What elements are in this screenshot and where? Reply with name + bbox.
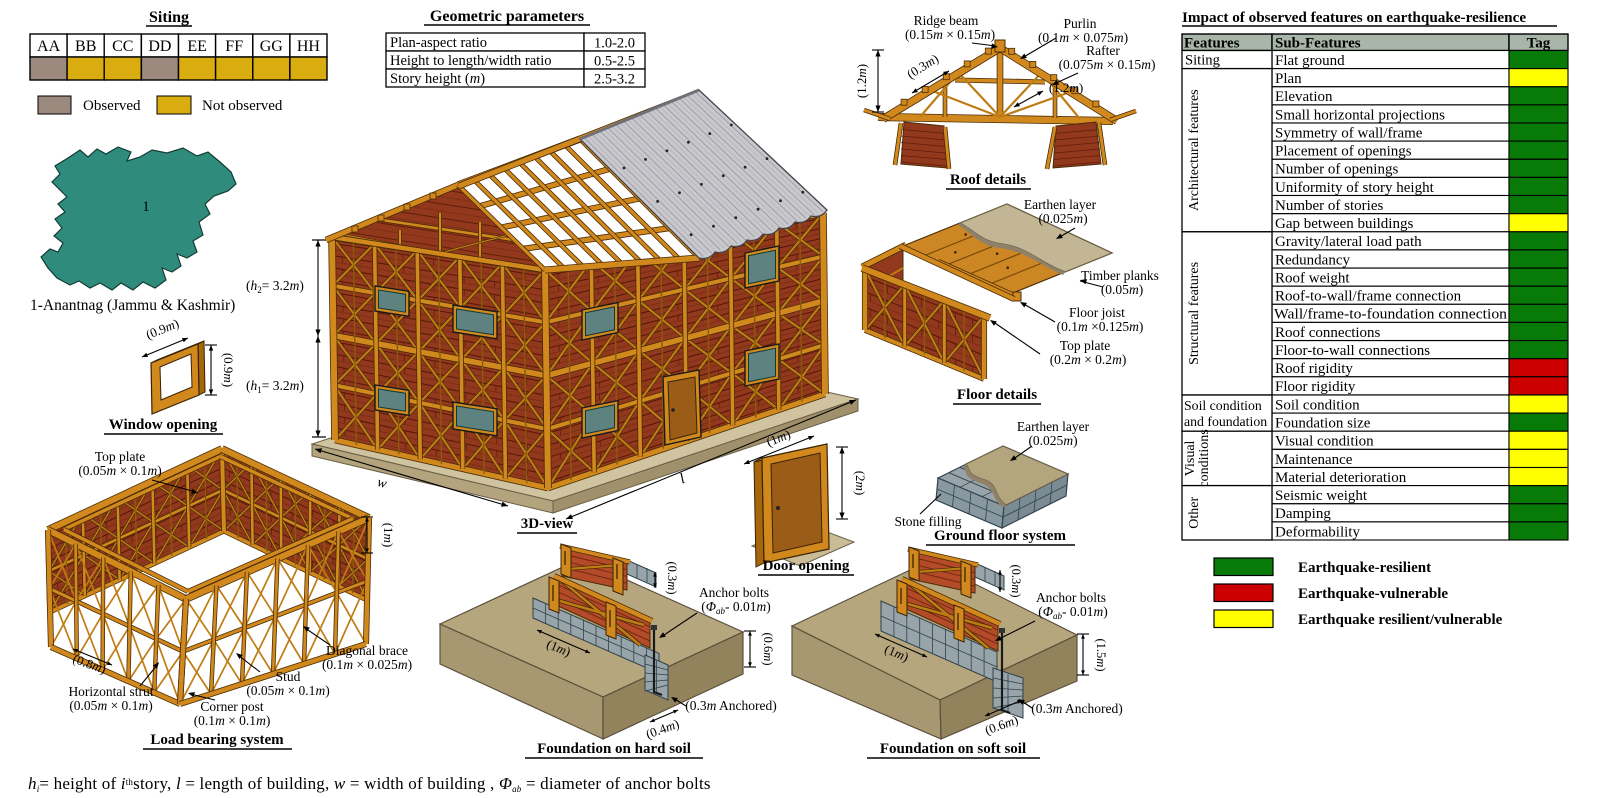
svg-text:(0.05m × 0.1m): (0.05m × 0.1m) [78, 463, 161, 478]
svg-text:Purlin: Purlin [1063, 16, 1096, 31]
svg-text:conditions: conditions [1197, 429, 1212, 487]
svg-text:EE: EE [187, 38, 207, 55]
svg-text:Material deterioration: Material deterioration [1275, 470, 1407, 486]
svg-text:Uniformity of story height: Uniformity of story height [1275, 180, 1435, 196]
svg-text:Earthen layer: Earthen layer [1024, 197, 1097, 212]
svg-text:Earthen layer: Earthen layer [1017, 419, 1090, 434]
svg-text:3D-view: 3D-view [521, 516, 574, 532]
svg-text:Roof details: Roof details [950, 172, 1026, 188]
svg-text:Foundation on hard soil: Foundation on hard soil [537, 741, 691, 757]
svg-text:Roof weight: Roof weight [1275, 271, 1350, 287]
svg-text:(0.05m × 0.1m): (0.05m × 0.1m) [69, 698, 152, 713]
svg-text:Plan-aspect ratio: Plan-aspect ratio [390, 35, 487, 51]
svg-text:Flat ground: Flat ground [1275, 53, 1345, 69]
svg-text:(0.075m × 0.15m): (0.075m × 0.15m) [1059, 57, 1156, 72]
svg-text:Siting: Siting [149, 9, 189, 26]
svg-text:Anchor bolts: Anchor bolts [699, 585, 769, 600]
svg-text:(0.3m Anchored): (0.3m Anchored) [685, 698, 776, 713]
svg-text:Gap between buildings: Gap between buildings [1275, 216, 1413, 232]
svg-text:Architectural features: Architectural features [1187, 89, 1202, 211]
svg-text:Window opening: Window opening [109, 417, 218, 433]
svg-text:(0.2m × 0.2m): (0.2m × 0.2m) [1050, 352, 1127, 367]
svg-text:Elevation: Elevation [1275, 89, 1333, 105]
svg-text:Soil condition: Soil condition [1275, 397, 1360, 413]
svg-text:Tag: Tag [1527, 36, 1551, 52]
svg-text:Story height (m): Story height (m) [390, 71, 485, 87]
svg-text:1: 1 [142, 199, 150, 215]
svg-text:Foundation size: Foundation size [1275, 416, 1371, 432]
svg-text:Plan: Plan [1275, 71, 1302, 87]
svg-text:1-Anantnag (Jammu & Kashmir): 1-Anantnag (Jammu & Kashmir) [30, 297, 235, 314]
svg-text:Earthquake-resilient: Earthquake-resilient [1298, 560, 1431, 576]
svg-text:Roof connections: Roof connections [1275, 325, 1381, 341]
svg-text:Siting: Siting [1185, 53, 1221, 69]
svg-text:HH: HH [297, 38, 321, 55]
svg-text:(1.2m): (1.2m) [1049, 80, 1083, 95]
svg-text:DD: DD [148, 38, 171, 55]
svg-text:(Φab- 0.01m): (Φab- 0.01m) [1038, 604, 1108, 621]
svg-text:(Φab- 0.01m): (Φab- 0.01m) [701, 599, 771, 616]
svg-text:(h1= 3.2m): (h1= 3.2m) [246, 378, 304, 395]
svg-text:Not observed: Not observed [202, 98, 283, 114]
svg-text:AA: AA [37, 38, 61, 55]
svg-text:Number of stories: Number of stories [1275, 198, 1383, 214]
svg-text:(1m): (1m) [381, 523, 396, 548]
svg-text:(0.1m ×0.125m): (0.1m ×0.125m) [1057, 319, 1144, 334]
svg-text:Geometric parameters: Geometric parameters [430, 8, 584, 25]
svg-text:Visual condition: Visual condition [1275, 434, 1374, 450]
svg-text:Roof rigidity: Roof rigidity [1275, 361, 1353, 377]
svg-text:Placement of openings: Placement of openings [1275, 144, 1412, 160]
svg-text:(1.5m): (1.5m) [1094, 639, 1108, 672]
svg-text:Ridge beam: Ridge beam [914, 13, 979, 28]
svg-text:(2m): (2m) [853, 471, 868, 496]
svg-text:Wall/frame-to-foundation conne: Wall/frame-to-foundation connection [1274, 307, 1508, 323]
svg-text:Stud: Stud [276, 669, 301, 684]
svg-text:GG: GG [260, 38, 284, 55]
svg-text:Timber planks: Timber planks [1081, 268, 1159, 283]
svg-text:Roof-to-wall/frame connection: Roof-to-wall/frame connection [1275, 289, 1462, 305]
svg-text:Anchor bolts: Anchor bolts [1036, 590, 1106, 605]
svg-text:Foundation on soft soil: Foundation on soft soil [880, 741, 1026, 757]
svg-text:Horizontal strut: Horizontal strut [68, 684, 153, 699]
svg-text:(0.1m × 0.1m): (0.1m × 0.1m) [194, 713, 271, 728]
svg-text:Number of openings: Number of openings [1275, 162, 1398, 178]
svg-text:(0.3m Anchored): (0.3m Anchored) [1031, 701, 1122, 716]
svg-text:0.5-2.5: 0.5-2.5 [594, 54, 635, 70]
svg-text:Features: Features [1184, 36, 1240, 52]
svg-text:(0.6m): (0.6m) [761, 633, 775, 666]
svg-text:(0.1m × 0.025m): (0.1m × 0.025m) [322, 657, 412, 672]
svg-text:Ground floor system: Ground floor system [934, 528, 1066, 544]
svg-text:Top plate: Top plate [95, 449, 145, 464]
svg-text:BB: BB [75, 38, 96, 55]
svg-text:Earthquake-vulnerable: Earthquake-vulnerable [1298, 586, 1448, 602]
svg-text:(1.2m): (1.2m) [854, 64, 869, 98]
svg-text:and foundation: and foundation [1184, 414, 1267, 429]
svg-text:(0.3m): (0.3m) [665, 562, 679, 595]
svg-text:Sub-Features: Sub-Features [1275, 36, 1361, 52]
svg-text:Other: Other [1187, 497, 1202, 529]
svg-text:Floor rigidity: Floor rigidity [1275, 379, 1356, 395]
svg-text:Floor-to-wall connections: Floor-to-wall connections [1275, 343, 1430, 359]
svg-text:(0.3m): (0.3m) [1009, 565, 1023, 598]
svg-text:(0.025m): (0.025m) [1028, 433, 1077, 448]
svg-text:Maintenance: Maintenance [1275, 452, 1353, 468]
svg-text:FF: FF [225, 38, 243, 55]
svg-text:Diagonal brace: Diagonal brace [326, 643, 408, 658]
svg-text:2.5-3.2: 2.5-3.2 [594, 72, 635, 88]
svg-text:Structural features: Structural features [1187, 262, 1202, 365]
svg-text:(0.15m × 0.15m): (0.15m × 0.15m) [905, 27, 995, 42]
svg-text:Gravity/lateral load path: Gravity/lateral load path [1275, 234, 1422, 250]
svg-text:Rafter: Rafter [1086, 43, 1120, 58]
svg-text:Small horizontal projections: Small horizontal projections [1275, 107, 1445, 123]
svg-text:Floor joist: Floor joist [1069, 305, 1125, 320]
svg-text:Door opening: Door opening [763, 558, 850, 574]
svg-text:(0.9m): (0.9m) [221, 353, 236, 387]
svg-text:Deformability: Deformability [1275, 524, 1360, 540]
svg-text:Corner post: Corner post [200, 699, 264, 714]
svg-text:Symmetry of wall/frame: Symmetry of wall/frame [1275, 125, 1423, 141]
svg-text:Redundancy: Redundancy [1275, 252, 1350, 268]
svg-text:Seismic weight: Seismic weight [1275, 488, 1368, 504]
svg-text:Earthquake resilient/vulnerabl: Earthquake resilient/vulnerable [1298, 612, 1503, 628]
svg-text:Height to length/width ratio: Height to length/width ratio [390, 53, 552, 69]
svg-text:Impact of observed features on: Impact of observed features on earthquak… [1182, 9, 1526, 26]
svg-text:Soil condition: Soil condition [1184, 398, 1262, 413]
svg-text:(h2= 3.2m): (h2= 3.2m) [246, 278, 304, 295]
svg-text:Stone filling: Stone filling [894, 514, 961, 529]
svg-text:Damping: Damping [1275, 506, 1331, 522]
svg-text:Visual: Visual [1183, 440, 1198, 476]
svg-text:Top plate: Top plate [1060, 338, 1110, 353]
svg-text:(0.05m): (0.05m) [1101, 282, 1143, 297]
svg-text:Observed: Observed [83, 98, 141, 114]
svg-text:Floor details: Floor details [957, 387, 1037, 403]
svg-text:Load bearing system: Load bearing system [150, 732, 284, 748]
svg-text:(0.025m): (0.025m) [1038, 211, 1087, 226]
svg-text:1.0-2.0: 1.0-2.0 [594, 36, 635, 52]
svg-text:(0.05m × 0.1m): (0.05m × 0.1m) [246, 683, 329, 698]
svg-text:CC: CC [112, 38, 133, 55]
